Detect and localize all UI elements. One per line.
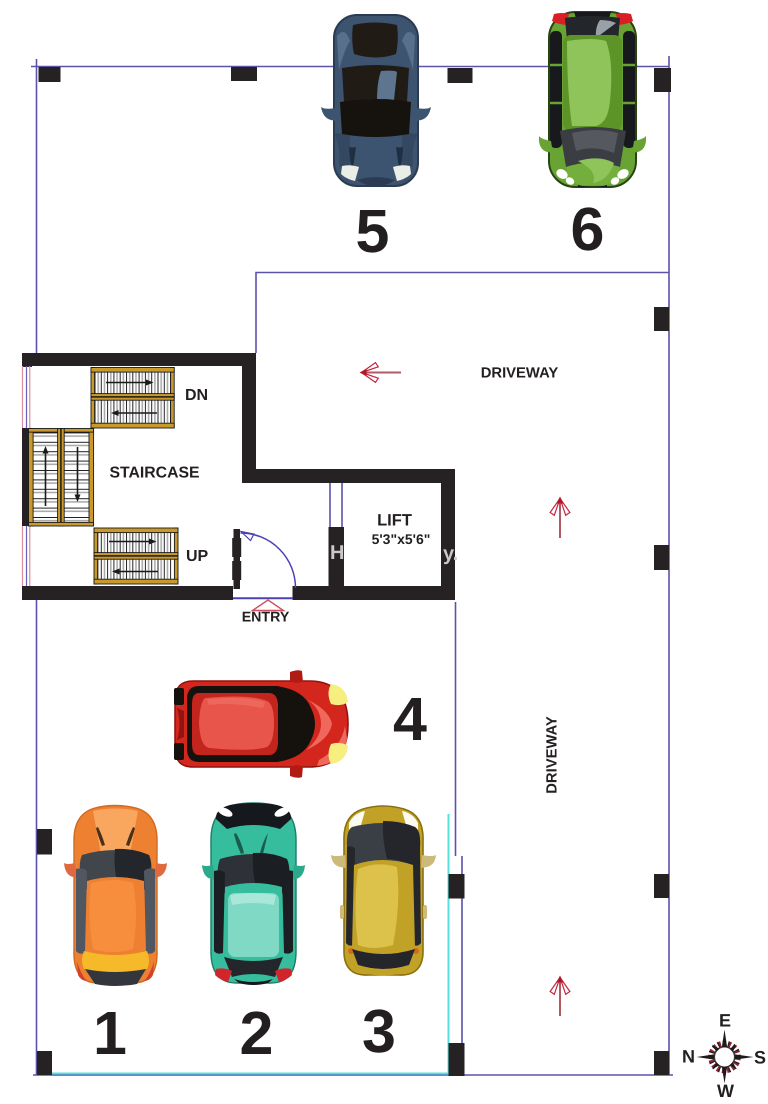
svg-text:6: 6 xyxy=(571,195,605,263)
svg-text:1: 1 xyxy=(93,999,127,1067)
svg-text:5: 5 xyxy=(356,197,390,265)
svg-text:ENTRY: ENTRY xyxy=(242,610,290,626)
svg-text:DRIVEWAY: DRIVEWAY xyxy=(481,366,559,382)
svg-text:S: S xyxy=(754,1048,766,1068)
svg-text:N: N xyxy=(682,1047,695,1067)
svg-text:y.: y. xyxy=(443,543,458,565)
svg-text:LIFT: LIFT xyxy=(377,512,412,530)
svg-text:H: H xyxy=(330,542,344,564)
svg-text:DRIVEWAY: DRIVEWAY xyxy=(545,716,561,794)
svg-text:UP: UP xyxy=(186,548,209,565)
svg-text:STAIRCASE: STAIRCASE xyxy=(109,465,199,482)
svg-text:5'3"x5'6": 5'3"x5'6" xyxy=(372,531,431,547)
svg-text:3: 3 xyxy=(362,997,396,1065)
svg-text:DN: DN xyxy=(185,387,208,404)
svg-text:4: 4 xyxy=(393,685,427,753)
svg-text:W: W xyxy=(717,1081,734,1101)
svg-text:E: E xyxy=(719,1011,731,1031)
svg-text:2: 2 xyxy=(240,999,274,1067)
